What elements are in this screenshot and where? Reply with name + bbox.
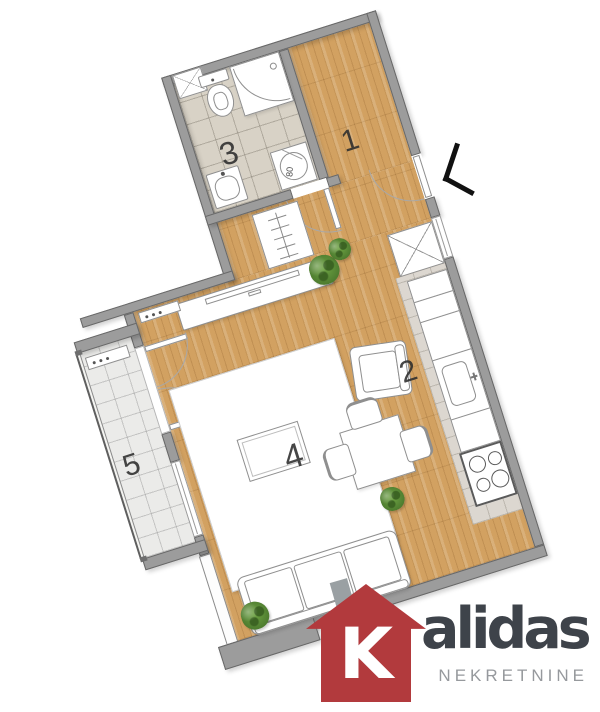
floorplan-page: { "plan": { "rooms": [ {"id": "hallway",… xyxy=(0,0,600,712)
entrance-chevron-icon xyxy=(427,133,483,200)
logo-name: alidas xyxy=(421,596,588,662)
kalidas-logo: K alidas NEKRETNINE xyxy=(300,580,600,712)
logo-subtitle: NEKRETNINE xyxy=(300,666,588,686)
washing-machine-label: 80 xyxy=(284,155,303,178)
